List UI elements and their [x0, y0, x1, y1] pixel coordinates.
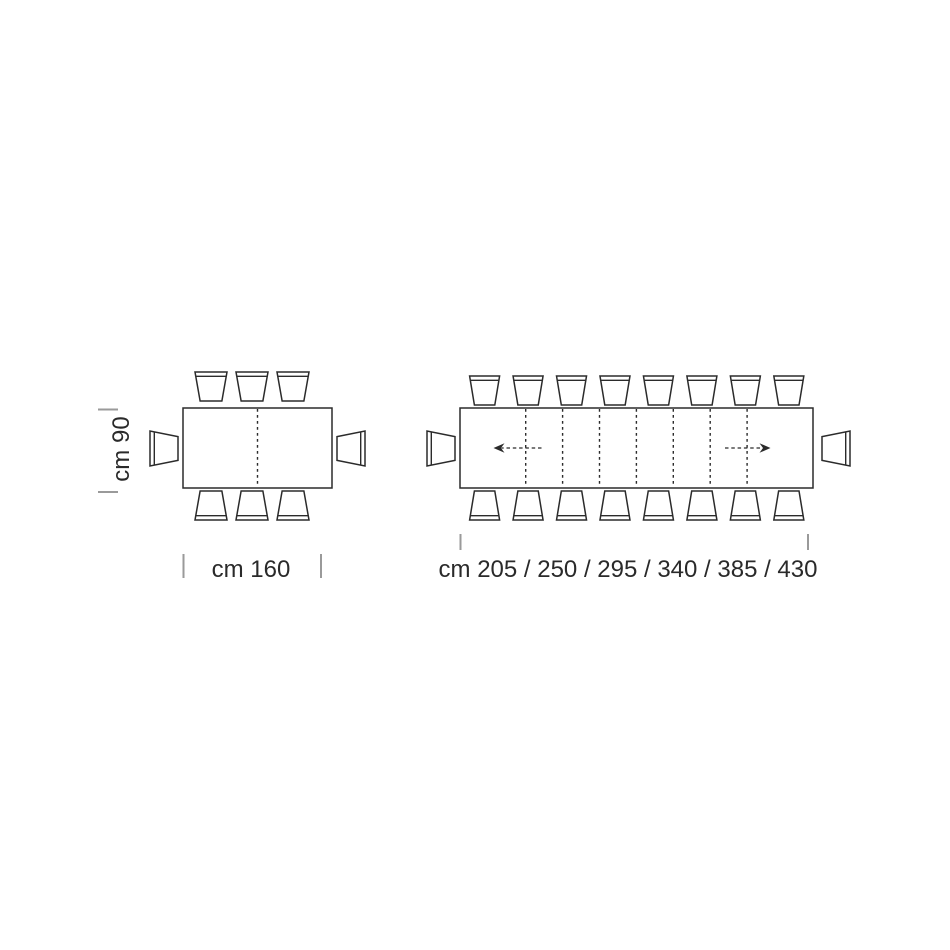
- seat-top: [470, 376, 500, 405]
- closed-table-diagram: [98, 372, 365, 578]
- seat-bottom: [195, 491, 227, 520]
- seat-bottom: [513, 491, 543, 520]
- seat-bottom: [277, 491, 309, 520]
- extended-table-lengths-label: cm 205 / 250 / 295 / 340 / 385 / 430: [439, 556, 818, 583]
- seat-top: [730, 376, 760, 405]
- seat-left: [150, 431, 178, 466]
- seat-top: [643, 376, 673, 405]
- seat-bottom: [730, 491, 760, 520]
- closed-table-width-label: cm 160: [212, 556, 291, 583]
- seat-bottom: [643, 491, 673, 520]
- seat-bottom: [557, 491, 587, 520]
- seat-top: [513, 376, 543, 405]
- seat-right: [822, 431, 850, 466]
- closed-table-depth-label: cm 90: [108, 416, 135, 481]
- seat-left: [427, 431, 455, 466]
- seat-bottom: [774, 491, 804, 520]
- seat-bottom: [687, 491, 717, 520]
- seat-bottom: [236, 491, 268, 520]
- seat-top: [277, 372, 309, 401]
- seat-top: [195, 372, 227, 401]
- seat-top: [236, 372, 268, 401]
- seat-top: [687, 376, 717, 405]
- product-dimension-drawing: cm 90 cm 160 cm 205 / 250 / 295 / 340 / …: [0, 0, 950, 950]
- seat-bottom: [600, 491, 630, 520]
- seat-bottom: [470, 491, 500, 520]
- seat-right: [337, 431, 365, 466]
- extended-table-diagram: [427, 376, 850, 550]
- seat-top: [774, 376, 804, 405]
- seat-top: [557, 376, 587, 405]
- seat-top: [600, 376, 630, 405]
- table-dimensions-diagram: cm 90 cm 160 cm 205 / 250 / 295 / 340 / …: [0, 0, 950, 950]
